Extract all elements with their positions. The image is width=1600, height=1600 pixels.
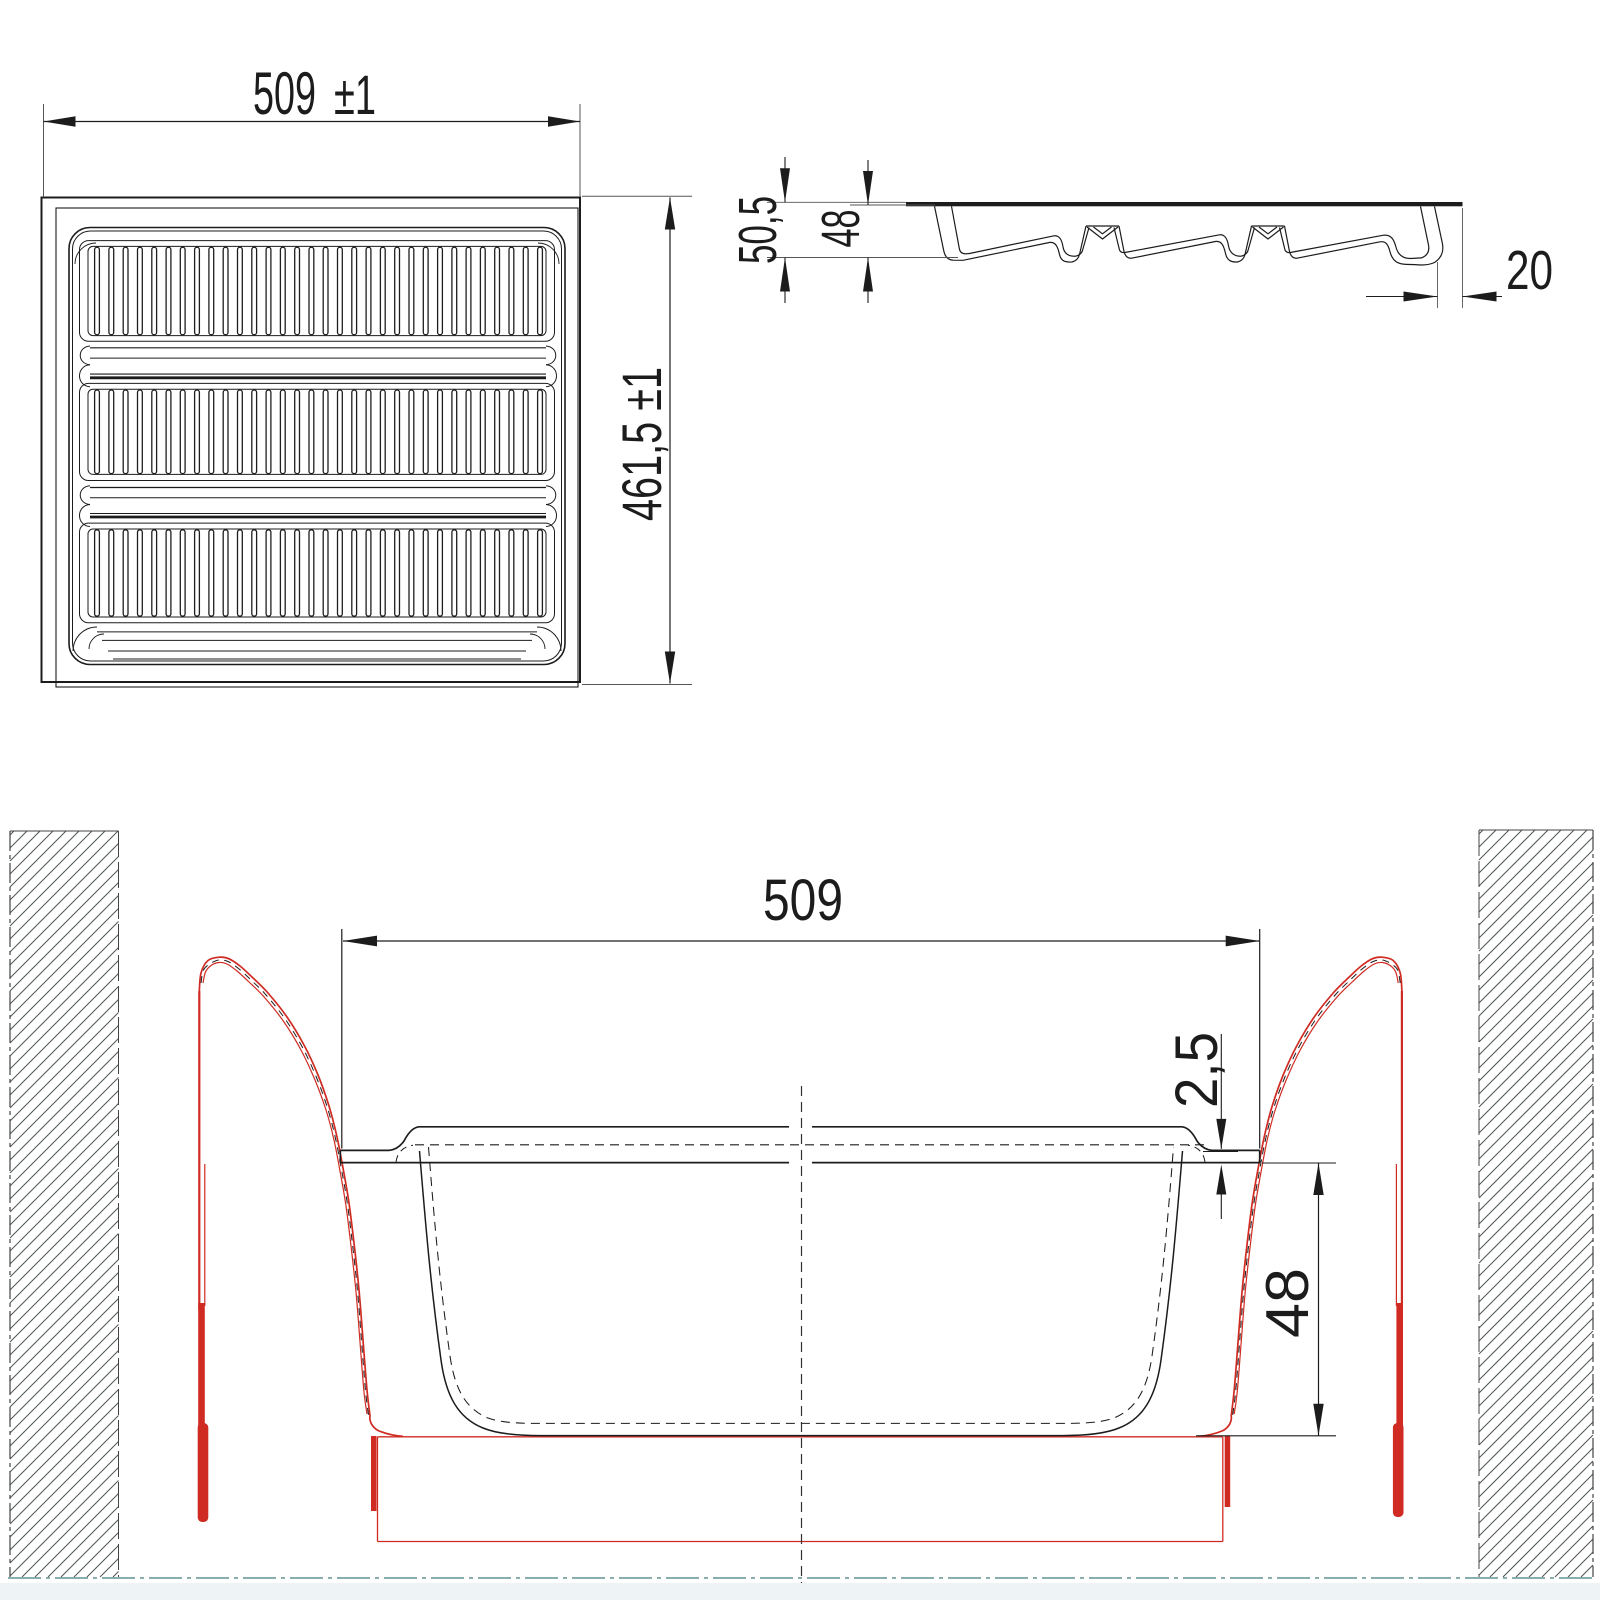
svg-text:509: 509 <box>253 60 316 127</box>
svg-text:461,5 ±1: 461,5 ±1 <box>610 367 673 521</box>
svg-text:48: 48 <box>811 210 871 248</box>
svg-text:50,5: 50,5 <box>728 196 788 264</box>
svg-text:509: 509 <box>763 868 843 933</box>
svg-text:20: 20 <box>1506 239 1553 301</box>
svg-text:±1: ±1 <box>334 63 376 126</box>
svg-text:2,5: 2,5 <box>1163 1032 1230 1108</box>
svg-text:48: 48 <box>1254 1268 1321 1338</box>
